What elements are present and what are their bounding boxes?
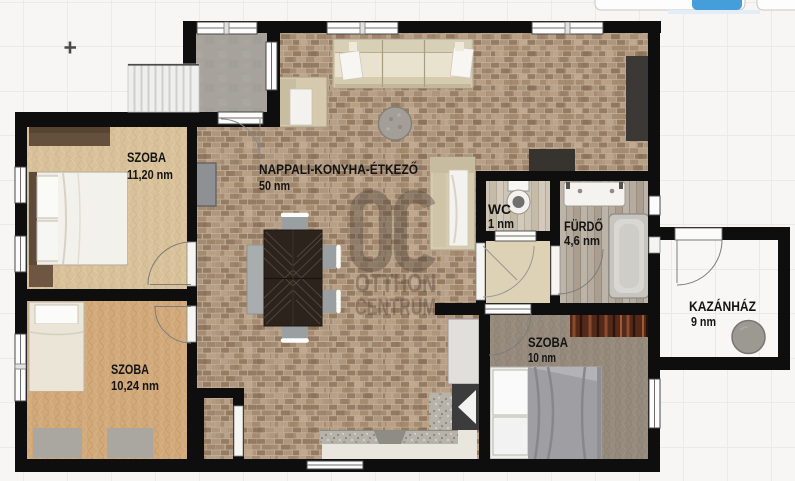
svg-text:4,6 nm: 4,6 nm — [564, 233, 600, 248]
svg-text:NAPPALI-KONYHA-ÉTKEZŐ: NAPPALI-KONYHA-ÉTKEZŐ — [259, 162, 418, 177]
svg-text:SZOBA: SZOBA — [111, 362, 149, 377]
svg-text:CENTRUM: CENTRUM — [355, 294, 436, 321]
svg-text:KAZÁNHÁZ: KAZÁNHÁZ — [689, 299, 756, 314]
svg-text:WC: WC — [488, 202, 511, 217]
svg-text:11,20 nm: 11,20 nm — [127, 167, 173, 182]
svg-text:10,24 nm: 10,24 nm — [111, 378, 159, 393]
svg-text:SZOBA: SZOBA — [528, 335, 568, 350]
svg-text:SZOBA: SZOBA — [127, 150, 166, 165]
svg-text:50 nm: 50 nm — [259, 178, 290, 193]
svg-text:10 nm: 10 nm — [528, 350, 556, 365]
svg-text:FÜRDŐ: FÜRDŐ — [564, 219, 603, 234]
svg-text:9 nm: 9 nm — [691, 314, 716, 329]
svg-text:1 nm: 1 nm — [488, 216, 514, 231]
